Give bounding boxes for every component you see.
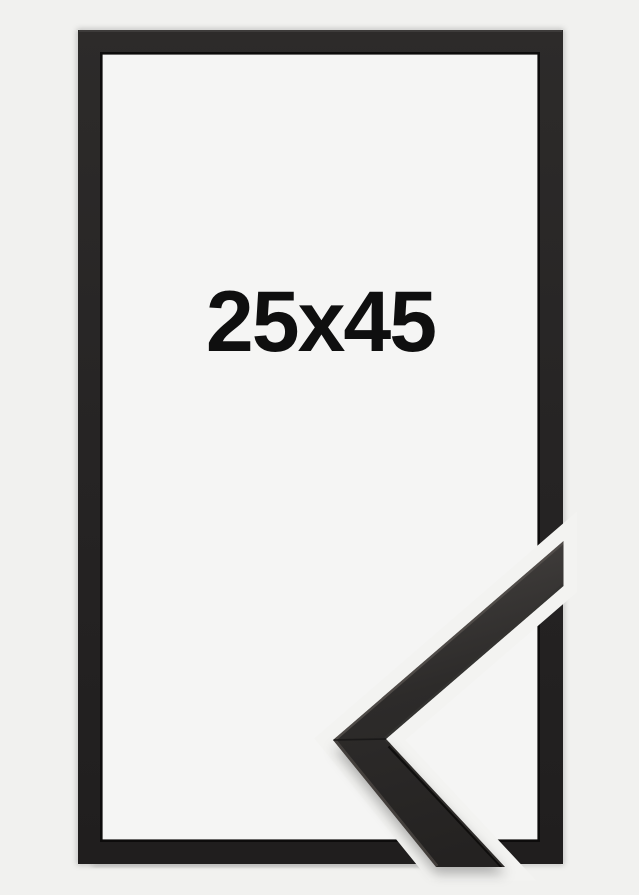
frame-interior xyxy=(100,52,540,842)
product-photo: 25x45 xyxy=(0,0,639,895)
mitre-seam xyxy=(333,739,386,740)
frame-graphic xyxy=(0,0,639,895)
size-label: 25x45 xyxy=(78,272,563,372)
